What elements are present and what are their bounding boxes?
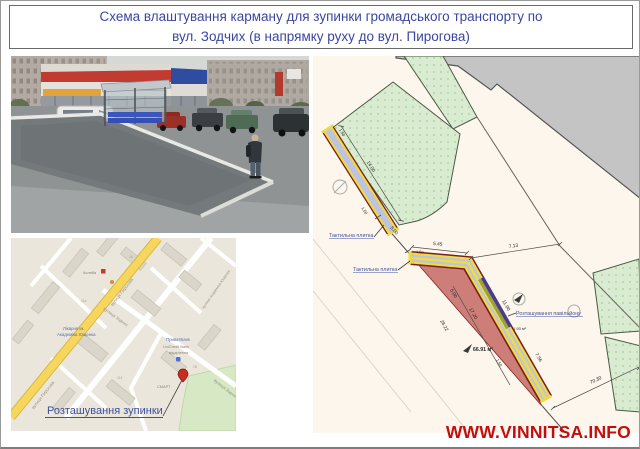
pavilion-area-value: 1.93 м² xyxy=(513,326,527,331)
house-number-1: 16 xyxy=(129,255,133,259)
callout-text: Розташування зупинки xyxy=(47,405,163,417)
poi-unicredit: UniCredit Bank xyxy=(163,344,189,349)
title-line-2: вул. Зодчих (в напрямку руху до вул. Пир… xyxy=(172,27,470,47)
poi-bank-icon xyxy=(176,357,181,362)
poi-branch: відділення xyxy=(169,350,188,355)
poi-smart: СМАРТ xyxy=(157,384,171,389)
pocket-area-value: 66.91 м² xyxy=(473,347,493,353)
title-box: Схема влаштування карману для зупинки гр… xyxy=(9,5,633,49)
infographic: Схема влаштування карману для зупинки гр… xyxy=(0,0,640,449)
poi-marker-orange xyxy=(110,280,114,284)
house-number-4: 28 xyxy=(193,365,197,369)
house-number-3: 114 xyxy=(117,376,123,380)
poi-privatbank: ПриватБанк xyxy=(166,337,190,342)
site-plan: 14.00 1.50 1.50 xyxy=(313,56,639,433)
dim-jog-width: 1.50 xyxy=(416,250,424,255)
label-tactile-bottom: Тактильна плитка xyxy=(353,267,397,273)
location-map: вулиця Пирогова вулиця Пирогова вулиця З… xyxy=(11,238,236,431)
watermark: WWW.VINNITSA.INFO xyxy=(446,422,631,443)
label-pavilion: Розташування павільйону xyxy=(516,310,581,317)
poi-marker-red xyxy=(101,269,106,274)
dim-jog: 5.45 xyxy=(433,241,443,248)
label-tactile-top: Тактильна плитка xyxy=(329,233,373,239)
house-number-2: 11а xyxy=(81,299,87,303)
poi-kolyba: Колиба xyxy=(83,270,97,275)
bus-shelter xyxy=(101,80,171,126)
title-line-1: Схема влаштування карману для зупинки гр… xyxy=(99,7,542,27)
bus-stop-photo xyxy=(11,56,309,233)
poi-hospital-1: Лікарня ім. xyxy=(63,326,85,331)
poi-hospital-2: Академіка Ющенка xyxy=(57,332,96,337)
